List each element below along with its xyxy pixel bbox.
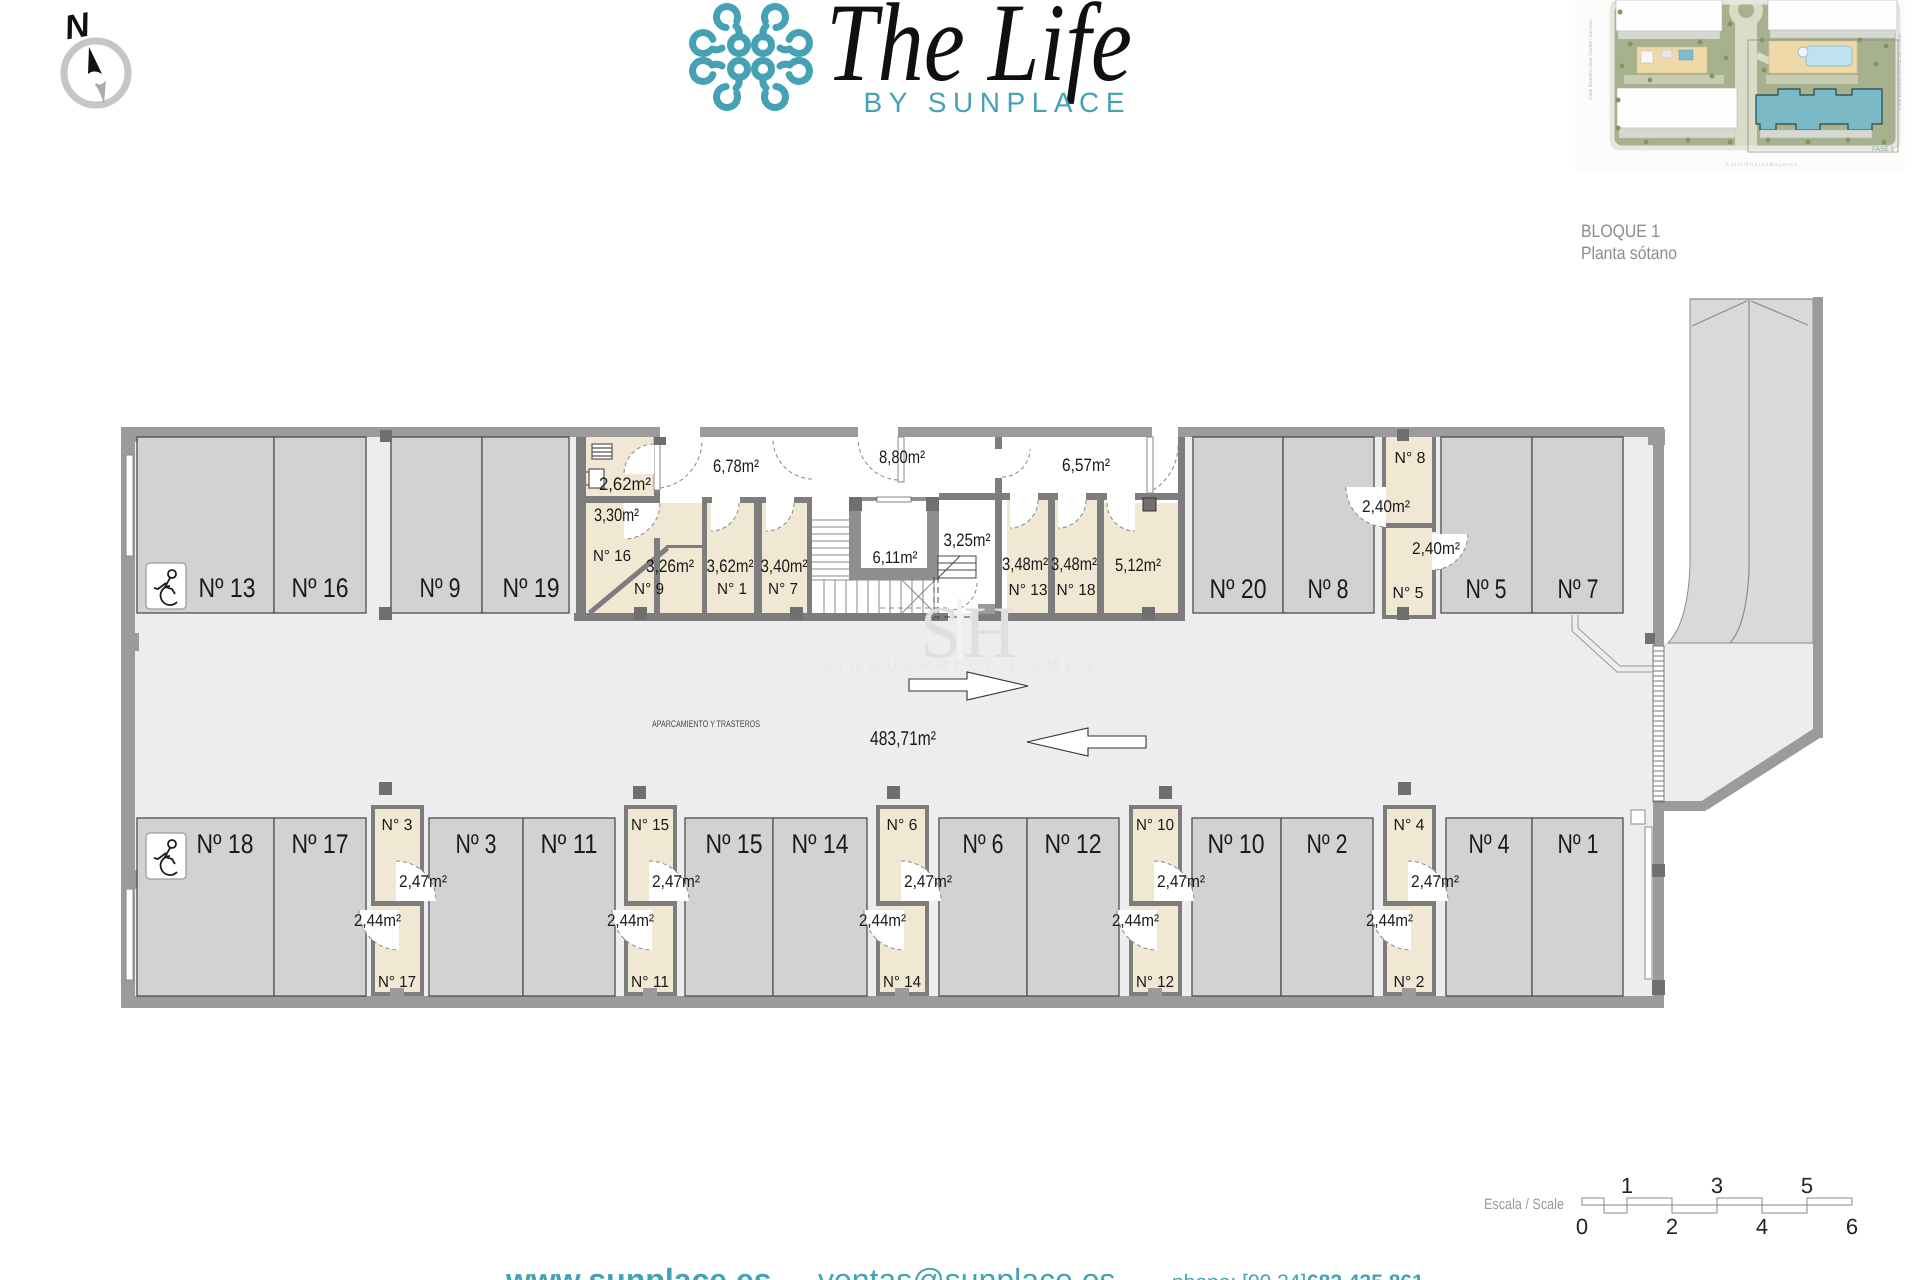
svg-text:2,44m²: 2,44m² <box>1366 911 1413 930</box>
svg-text:Calle Holanda Avenida Del Alc: Calle Holanda Avenida Del Alcalde <box>1897 33 1903 110</box>
svg-text:Nº 16: Nº 16 <box>292 573 349 603</box>
svg-text:-: - <box>790 1267 799 1280</box>
svg-text:6,78m²: 6,78m² <box>713 456 759 476</box>
svg-text:N° 18: N° 18 <box>1057 582 1096 599</box>
svg-text:C a l l e O f i c i o s M a: C a l l e O f i c i o s M a y o r e s <box>1726 162 1797 168</box>
svg-text:2,44m²: 2,44m² <box>607 911 654 930</box>
svg-text:2,47m²: 2,47m² <box>652 872 700 891</box>
svg-text:3: 3 <box>1711 1173 1723 1198</box>
svg-text:phone: [00 34]: phone: [00 34] <box>1172 1271 1306 1280</box>
svg-text:N° 3: N° 3 <box>382 817 413 834</box>
svg-text:2,47m²: 2,47m² <box>1157 872 1205 891</box>
svg-text:5: 5 <box>1801 1173 1813 1198</box>
svg-text:N° 16: N° 16 <box>593 548 631 565</box>
svg-text:2,44m²: 2,44m² <box>859 911 906 930</box>
svg-text:N° 10: N° 10 <box>1136 817 1174 834</box>
svg-text:1: 1 <box>1621 1173 1633 1198</box>
svg-text:N° 4: N° 4 <box>1394 817 1425 834</box>
svg-text:Nº 12: Nº 12 <box>1045 829 1102 859</box>
svg-text:8,80m²: 8,80m² <box>879 447 925 467</box>
svg-text:Nº 7: Nº 7 <box>1558 574 1599 604</box>
svg-text:N° 6: N° 6 <box>887 817 918 834</box>
svg-text:N° 1: N° 1 <box>717 581 747 598</box>
svg-text:2,44m²: 2,44m² <box>1112 911 1159 930</box>
svg-text:BLOQUE 1: BLOQUE 1 <box>1581 221 1660 241</box>
svg-text:3,26m²: 3,26m² <box>646 556 694 576</box>
svg-text:Calle Maestro Jose Garberi Ser: Calle Maestro Jose Garberi Serrano <box>1588 20 1594 100</box>
svg-text:2,47m²: 2,47m² <box>904 872 952 891</box>
svg-text:BY SUNPLACE: BY SUNPLACE <box>864 87 1125 118</box>
svg-text:6,57m²: 6,57m² <box>1062 455 1110 475</box>
svg-text:5,12m²: 5,12m² <box>1115 555 1161 575</box>
svg-text:-: - <box>1148 1271 1155 1280</box>
svg-text:0: 0 <box>1576 1214 1588 1239</box>
svg-text:2,40m²: 2,40m² <box>1362 497 1410 516</box>
svg-text:FASE 1: FASE 1 <box>1872 146 1894 153</box>
svg-text:3,30m²: 3,30m² <box>594 505 639 525</box>
svg-text:Nº 6: Nº 6 <box>963 829 1004 859</box>
svg-text:N° 15: N° 15 <box>631 817 669 834</box>
svg-text:3,48m²: 3,48m² <box>1051 554 1097 574</box>
svg-text:Nº 4: Nº 4 <box>1469 829 1510 859</box>
svg-text:Nº 5: Nº 5 <box>1466 574 1507 604</box>
svg-text:6,11m²: 6,11m² <box>873 548 918 567</box>
svg-text:Nº 8: Nº 8 <box>1308 574 1349 604</box>
svg-text:Nº 1: Nº 1 <box>1558 829 1599 859</box>
svg-text:Nº 11: Nº 11 <box>541 829 598 859</box>
svg-text:2,47m²: 2,47m² <box>399 872 447 891</box>
svg-text:ventas@sunplace.es: ventas@sunplace.es <box>818 1262 1116 1280</box>
svg-text:2,47m²: 2,47m² <box>1411 872 1459 891</box>
svg-text:3,48m²: 3,48m² <box>1002 554 1048 574</box>
svg-text:N° 7: N° 7 <box>768 581 798 598</box>
svg-text:N° 8: N° 8 <box>1395 450 1426 467</box>
svg-text:Nº 13: Nº 13 <box>199 573 256 603</box>
svg-text:4: 4 <box>1756 1214 1768 1239</box>
svg-text:3,40m²: 3,40m² <box>761 556 808 576</box>
svg-text:682 435 861: 682 435 861 <box>1307 1271 1424 1280</box>
svg-text:Planta sótano: Planta sótano <box>1581 243 1677 263</box>
svg-text:2: 2 <box>1666 1214 1678 1239</box>
svg-text:Nº 20: Nº 20 <box>1210 574 1267 604</box>
svg-text:Nº 14: Nº 14 <box>792 829 849 859</box>
svg-text:483,71m²: 483,71m² <box>870 728 936 750</box>
svg-text:6: 6 <box>1846 1214 1858 1239</box>
svg-text:Nº 15: Nº 15 <box>706 829 763 859</box>
svg-text:APARCAMIENTO Y TRASTEROS: APARCAMIENTO Y TRASTEROS <box>652 719 760 730</box>
svg-text:2,44m²: 2,44m² <box>354 911 401 930</box>
svg-text:Nº 10: Nº 10 <box>1208 829 1265 859</box>
svg-text:2,40m²: 2,40m² <box>1412 539 1460 558</box>
svg-text:SINGULARITY HOMES: SINGULARITY HOMES <box>822 657 1100 674</box>
svg-text:Nº 18: Nº 18 <box>197 829 254 859</box>
svg-text:3,25m²: 3,25m² <box>944 530 991 550</box>
svg-text:N° 5: N° 5 <box>1393 585 1424 602</box>
svg-text:N° 9: N° 9 <box>634 581 664 598</box>
svg-text:Nº 17: Nº 17 <box>292 829 349 859</box>
svg-text:Nº 2: Nº 2 <box>1307 829 1348 859</box>
svg-text:3,62m²: 3,62m² <box>707 556 754 576</box>
svg-text:Nº 9: Nº 9 <box>420 573 461 603</box>
svg-text:Nº 19: Nº 19 <box>503 573 560 603</box>
svg-text:2,62m²: 2,62m² <box>599 474 651 494</box>
svg-text:www.sunplace.es: www.sunplace.es <box>505 1262 772 1280</box>
svg-text:Nº 3: Nº 3 <box>456 829 497 859</box>
svg-text:Escala / Scale: Escala / Scale <box>1484 1196 1564 1213</box>
